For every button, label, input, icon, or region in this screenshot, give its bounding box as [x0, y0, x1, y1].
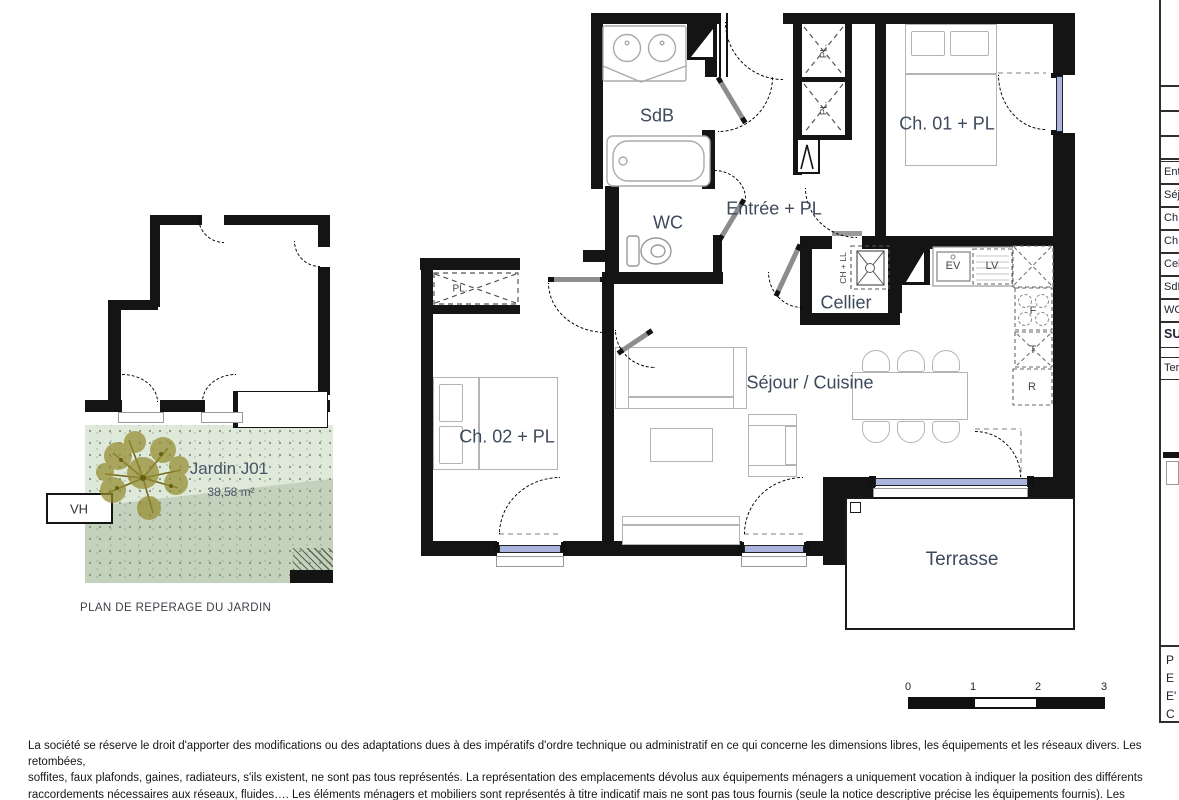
label-pl: PL. — [819, 101, 830, 115]
corner-row: E' — [1166, 689, 1176, 703]
washer — [851, 246, 889, 289]
garden-area: 38,58 m² — [207, 485, 254, 499]
duct-triangle — [691, 29, 713, 57]
scale-segment-white — [973, 697, 1038, 709]
table-row: Ent — [1160, 161, 1179, 184]
corner-box-line — [1159, 645, 1179, 647]
duct-triangle — [906, 252, 924, 282]
label-t: T — [1030, 344, 1037, 356]
plan-linework — [0, 0, 1179, 800]
label-pl: PL. — [452, 284, 467, 295]
room-label-cellier: Cellier — [820, 293, 871, 314]
tree — [96, 431, 189, 520]
title-block-line — [1159, 135, 1179, 137]
garden-caption: PLAN DE REPERAGE DU JARDIN — [80, 602, 271, 614]
label-four: F — [1030, 305, 1037, 317]
title-block-line — [1159, 85, 1179, 87]
electrical-panel — [797, 139, 819, 173]
scale-segment-black — [1038, 697, 1105, 709]
scale-tick-0: 0 — [905, 681, 911, 693]
disclaimer-text: La société se réserve le droit d'apporte… — [28, 738, 1170, 800]
label-lv: LV — [986, 260, 999, 272]
table-row: SdB — [1160, 276, 1179, 299]
scale-tick-3: 3 — [1101, 681, 1107, 693]
table-row: Cel — [1160, 253, 1179, 276]
bathtub — [607, 136, 710, 186]
room-label-sdb: SdB — [640, 106, 674, 127]
table-row-terrace: Ter — [1160, 357, 1179, 380]
corner-row: C — [1166, 707, 1175, 721]
toilet — [627, 236, 671, 266]
table-row: Séj — [1160, 184, 1179, 207]
room-label-entree: Entrée + PL — [726, 199, 822, 220]
label-ch-ll: CH + LL — [838, 252, 848, 283]
garden-name: Jardin J01 — [190, 459, 268, 479]
title-block-line — [1159, 110, 1179, 112]
table-row: Ch. — [1160, 207, 1179, 230]
floor-plan-sheet: SdB WC Entrée + PL Ch. 01 + PL Cellier S… — [0, 0, 1179, 800]
room-label-ch02: Ch. 02 + PL — [459, 427, 555, 448]
corner-row: E — [1166, 671, 1174, 685]
label-ev: EV — [946, 260, 961, 272]
scale-tick-1: 1 — [970, 681, 976, 693]
room-label-terrasse: Terrasse — [926, 549, 999, 571]
room-label-ch01: Ch. 01 + PL — [899, 114, 995, 135]
title-block-line — [1159, 158, 1179, 160]
table-row-total: SU — [1160, 322, 1179, 348]
room-label-sejour: Séjour / Cuisine — [746, 373, 873, 394]
label-pl: PL. — [819, 44, 830, 58]
scale-segment-black — [908, 697, 973, 709]
table-row: Ch. — [1160, 230, 1179, 253]
table-row: WC — [1160, 299, 1179, 322]
corner-row: P — [1166, 653, 1174, 667]
label-r: R — [1028, 381, 1036, 393]
room-label-wc: WC — [653, 213, 683, 234]
door-leaf — [548, 277, 606, 282]
corner-box-line — [1159, 721, 1179, 723]
scale-tick-2: 2 — [1035, 681, 1041, 693]
label-vh: VH — [70, 502, 88, 517]
double-washbasin — [603, 26, 686, 82]
